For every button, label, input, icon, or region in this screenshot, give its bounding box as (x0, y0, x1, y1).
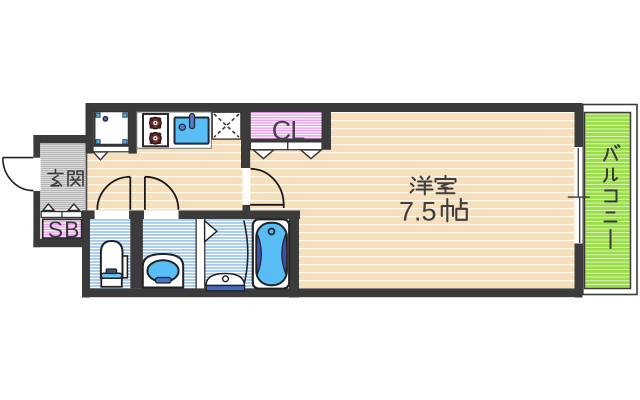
svg-text:SB: SB (48, 217, 81, 243)
svg-text:7.5: 7.5 (399, 197, 437, 227)
svg-text:CL: CL (272, 116, 305, 146)
